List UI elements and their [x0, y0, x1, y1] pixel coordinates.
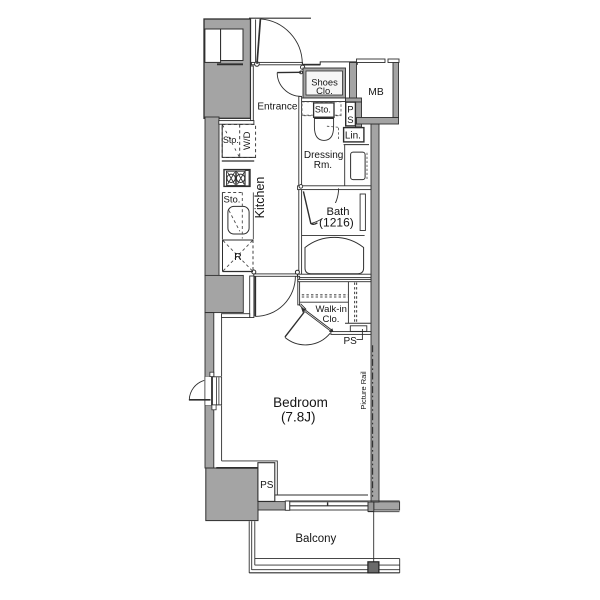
svg-text:(1216): (1216) — [319, 215, 354, 229]
svg-text:Sto.: Sto. — [315, 104, 331, 114]
svg-text:Lin.: Lin. — [345, 131, 361, 142]
svg-text:PS: PS — [344, 336, 358, 347]
svg-text:Kitchen: Kitchen — [253, 177, 267, 219]
svg-text:Entrance: Entrance — [257, 102, 297, 113]
svg-text:Clo.: Clo. — [323, 314, 340, 325]
svg-text:(7.8J): (7.8J) — [281, 410, 316, 425]
svg-text:S: S — [347, 115, 353, 126]
svg-text:MB: MB — [368, 87, 384, 98]
svg-text:Rm.: Rm. — [314, 160, 332, 171]
svg-text:W/D: W/D — [242, 131, 253, 150]
svg-text:PS: PS — [260, 480, 274, 491]
svg-text:Sto.: Sto. — [223, 135, 239, 145]
svg-text:Balcony: Balcony — [295, 533, 336, 545]
svg-text:Sto.: Sto. — [224, 195, 241, 206]
svg-text:Bedroom: Bedroom — [273, 395, 328, 410]
svg-text:Clo.: Clo. — [316, 85, 333, 96]
svg-text:R: R — [234, 251, 242, 263]
svg-text:Picture Rail: Picture Rail — [359, 371, 368, 410]
